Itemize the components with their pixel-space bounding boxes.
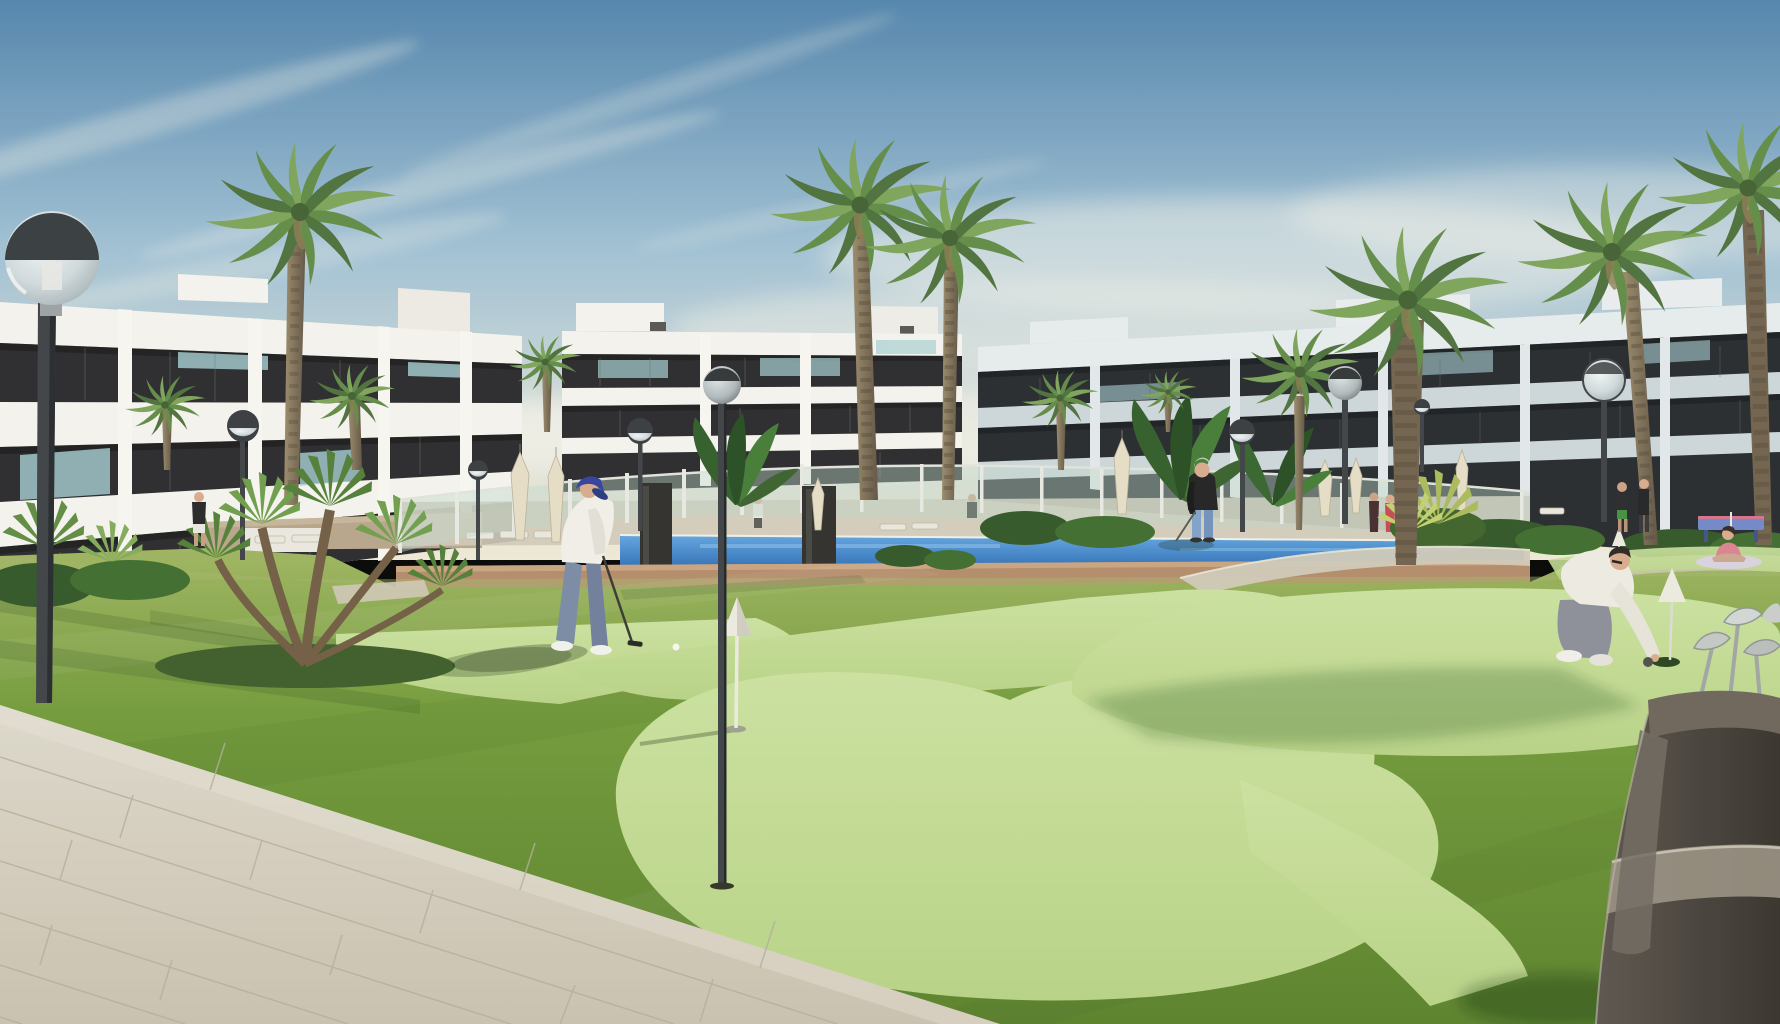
render-canvas (0, 0, 1780, 1024)
atmosphere-haze (0, 0, 1780, 1024)
